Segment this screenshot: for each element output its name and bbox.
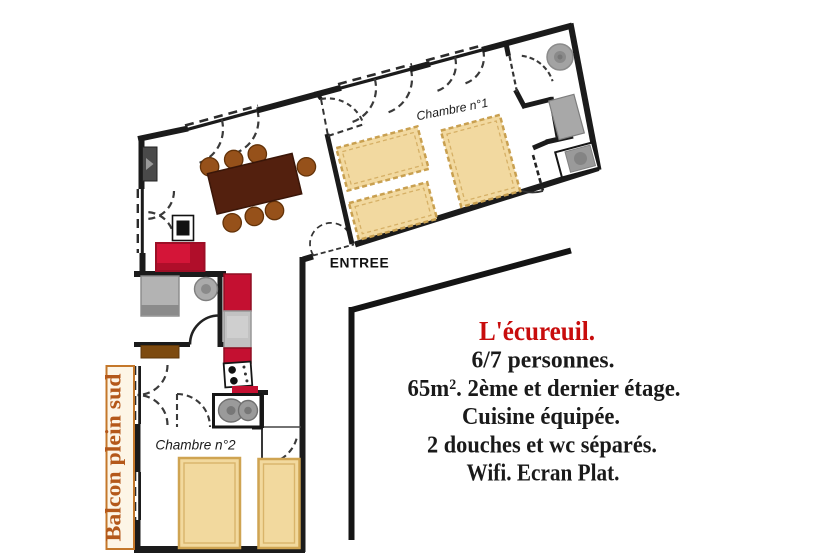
svg-text:Chambre n°2: Chambre n°2 — [155, 438, 236, 453]
svg-text:6/7 personnes.: 6/7 personnes. — [472, 347, 615, 374]
svg-text:65m2. 2ème et dernier étage.: 65m2. 2ème et dernier étage. — [408, 375, 681, 402]
svg-text:Cuisine équipée.: Cuisine équipée. — [462, 403, 620, 430]
svg-text:L'écureuil.: L'écureuil. — [479, 316, 595, 346]
svg-text:ENTREE: ENTREE — [330, 256, 390, 271]
svg-text:Wifi. Ecran Plat.: Wifi. Ecran Plat. — [467, 460, 620, 487]
svg-text:Balcon plein sud: Balcon plein sud — [101, 373, 126, 542]
svg-text:2 douches et wc séparés.: 2 douches et wc séparés. — [427, 432, 657, 459]
